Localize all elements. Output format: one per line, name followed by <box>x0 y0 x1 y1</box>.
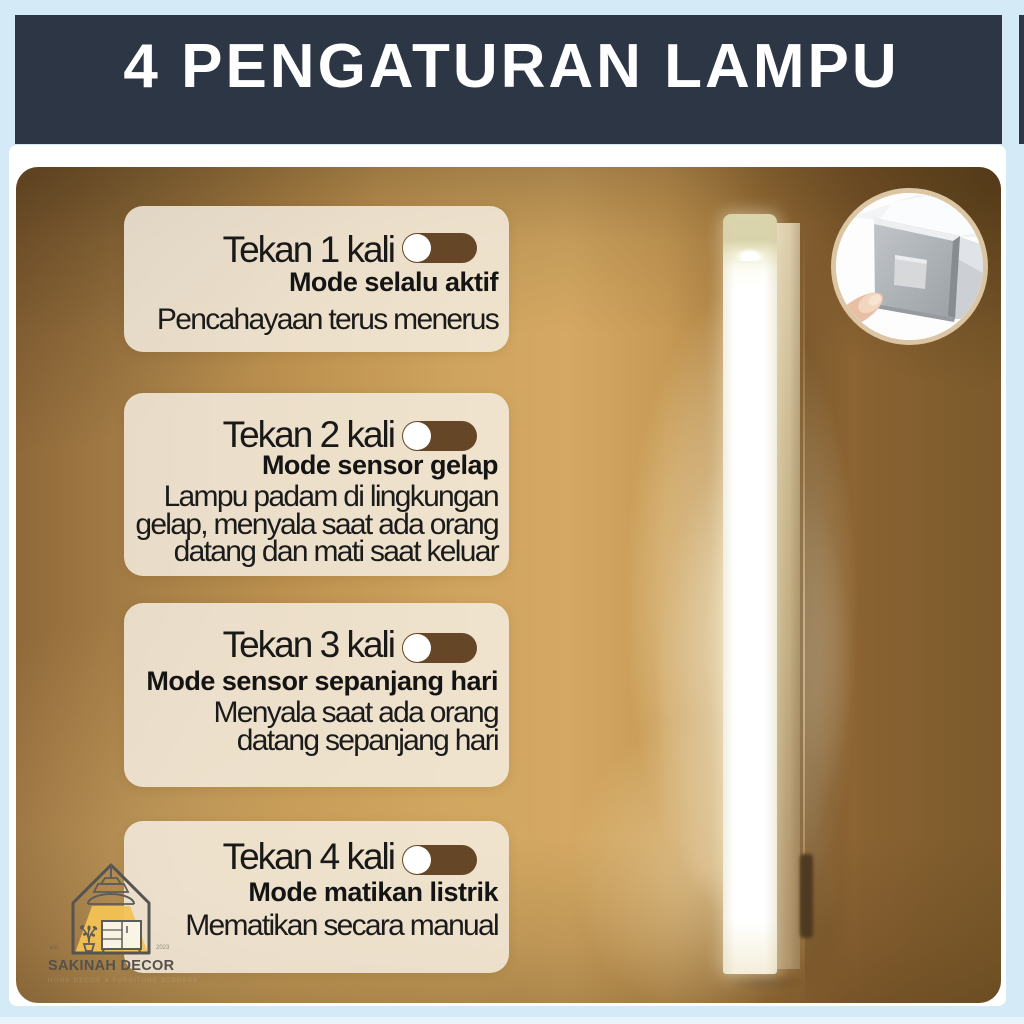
svg-text:est: est <box>50 945 58 951</box>
svg-text:SAKINAH DECOR: SAKINAH DECOR <box>48 958 175 974</box>
svg-text:HOME DECOR & FURNITURE STORAGE: HOME DECOR & FURNITURE STORAGE <box>48 977 199 984</box>
svg-text:2023: 2023 <box>156 945 170 951</box>
